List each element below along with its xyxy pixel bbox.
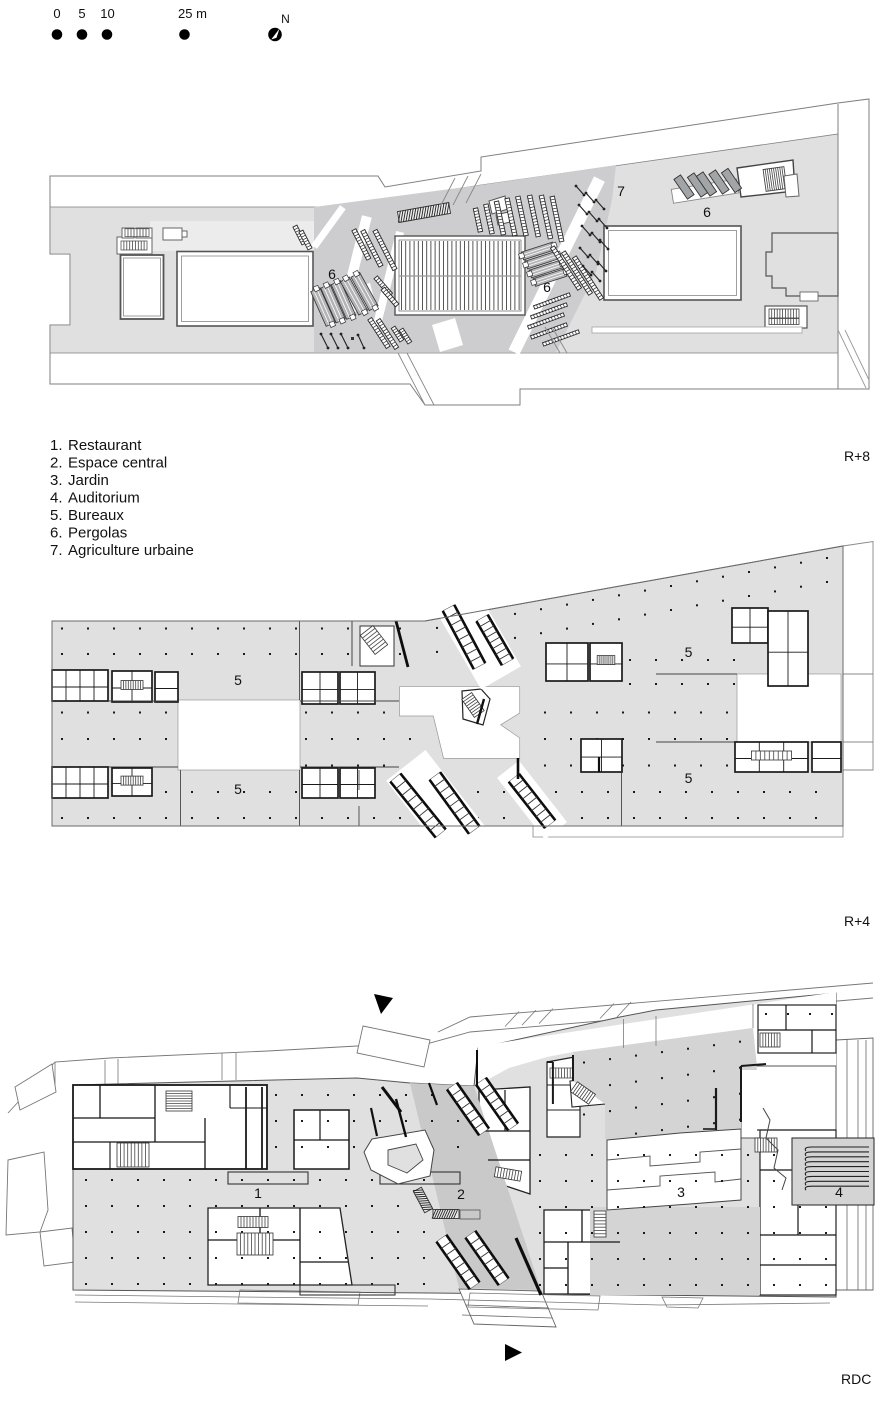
- svg-text:4: 4: [835, 1184, 843, 1200]
- svg-text:Agriculture urbaine: Agriculture urbaine: [68, 542, 194, 559]
- svg-text:6: 6: [543, 279, 551, 295]
- svg-text:1.: 1.: [50, 437, 63, 454]
- svg-text:3.: 3.: [50, 472, 63, 489]
- svg-text:2: 2: [457, 1186, 465, 1202]
- svg-text:Restaurant: Restaurant: [68, 437, 142, 454]
- svg-text:7.: 7.: [50, 542, 63, 559]
- svg-text:25 m: 25 m: [178, 6, 207, 21]
- svg-text:RDC: RDC: [841, 1371, 871, 1387]
- svg-text:6: 6: [328, 266, 336, 282]
- svg-text:N: N: [281, 12, 290, 26]
- svg-text:10: 10: [100, 6, 114, 21]
- svg-text:4.: 4.: [50, 490, 63, 507]
- svg-text:R+4: R+4: [844, 913, 870, 929]
- svg-text:5: 5: [78, 6, 85, 21]
- svg-text:3: 3: [677, 1184, 685, 1200]
- svg-text:0: 0: [53, 6, 60, 21]
- svg-text:Espace central: Espace central: [68, 455, 167, 472]
- svg-text:5: 5: [685, 770, 693, 786]
- svg-text:1: 1: [254, 1185, 262, 1201]
- svg-text:6.: 6.: [50, 525, 63, 542]
- svg-text:5: 5: [234, 781, 242, 797]
- svg-text:Auditorium: Auditorium: [68, 490, 140, 507]
- svg-text:5.: 5.: [50, 507, 63, 524]
- svg-text:6: 6: [703, 204, 711, 220]
- svg-text:Jardin: Jardin: [68, 472, 109, 489]
- svg-text:2.: 2.: [50, 455, 63, 472]
- svg-text:5: 5: [685, 644, 693, 660]
- svg-text:R+8: R+8: [844, 448, 870, 464]
- svg-text:7: 7: [617, 183, 625, 199]
- svg-text:5: 5: [234, 672, 242, 688]
- svg-text:Pergolas: Pergolas: [68, 525, 127, 542]
- svg-text:Bureaux: Bureaux: [68, 507, 124, 524]
